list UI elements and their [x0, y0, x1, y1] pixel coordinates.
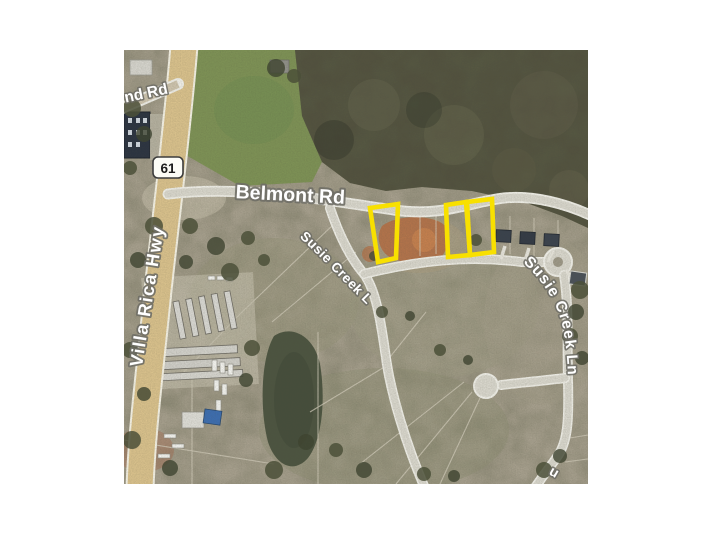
aerial-map: nd Rd Belmont Rd Villa Rica Hwy Susie Cr…: [124, 50, 588, 484]
photo-grain: [124, 50, 588, 484]
aerial-map-svg: nd Rd Belmont Rd Villa Rica Hwy Susie Cr…: [124, 50, 588, 484]
highway-61-number: 61: [160, 161, 176, 176]
highway-61-shield: 61: [153, 157, 183, 178]
page: nd Rd Belmont Rd Villa Rica Hwy Susie Cr…: [0, 0, 714, 536]
